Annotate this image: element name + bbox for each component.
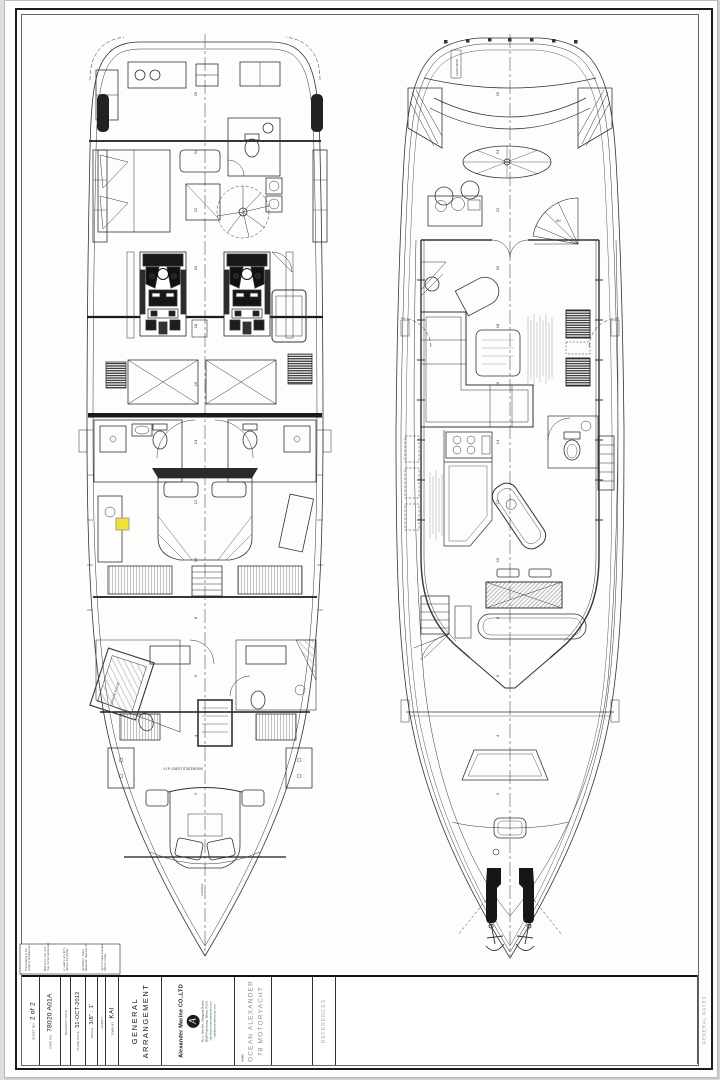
svg-text:property of Alexander: property of Alexander (28, 945, 31, 971)
master-wardrobe-starboard (238, 566, 302, 594)
engine-room (93, 150, 327, 404)
model-name-line2: 78 MOTORYACHT (256, 986, 266, 1056)
svg-text:18: 18 (495, 323, 500, 328)
main-deck-stations: 26 24 22 20 18 16 14 12 10 8 6 4 2 (495, 91, 500, 795)
svg-text:Alexander reserves the: Alexander reserves the (85, 943, 88, 971)
svg-text:16: 16 (193, 381, 198, 386)
guest-berth-port (150, 646, 190, 664)
verify-label: VERIFY (100, 1016, 104, 1028)
verify-cell: VERIFY (98, 977, 106, 1065)
chain-locker-label: LOCKER (200, 883, 204, 896)
property-disclaimer: This drawing is the property of Alexande… (20, 942, 120, 974)
svg-text:6: 6 (495, 674, 500, 677)
main-deck-plan: DN TEAK DECK (396, 34, 624, 958)
company-name: Alexander Marine CO.,LTD (179, 984, 185, 1058)
galley-island (488, 479, 550, 553)
svg-text:12: 12 (495, 499, 500, 504)
drawing-title-line1: GENERAL (129, 998, 140, 1044)
svg-text:14: 14 (193, 439, 198, 444)
master-headboard (152, 468, 258, 478)
starboard-engine (224, 252, 270, 336)
title-block: SHEET NO2 of 2 DWG NO78020 A01A REQUEST … (22, 975, 698, 1065)
company-logo: A (187, 1015, 200, 1028)
port-pump-unit (106, 362, 126, 388)
svg-text:20: 20 (495, 265, 500, 270)
dwg-no-label: DWG NO (48, 1035, 52, 1049)
companionway-stairs (192, 566, 222, 596)
helm-seat (455, 272, 503, 316)
starboard-stern-locker (311, 94, 323, 132)
general-notes-band: GENERAL NOTES (697, 975, 710, 1064)
specification-notes (528, 314, 552, 386)
salon-settee (421, 312, 533, 427)
general-notes-label: GENERAL NOTES (702, 995, 707, 1044)
drawing-title-cell: GENERAL ARRANGEMENT (119, 977, 162, 1065)
vip-nightstand-port (146, 790, 168, 806)
issue-date-value: 31-OCT-2012 (75, 991, 81, 1028)
washer (266, 178, 282, 194)
galley (405, 430, 550, 553)
request-date-cell: REQUEST DATE (61, 977, 71, 1065)
svg-text:22: 22 (495, 207, 500, 212)
vip-nightstand-starboard (242, 790, 264, 806)
svg-text:14: 14 (495, 439, 500, 444)
highlighted-fixture (116, 518, 129, 530)
svg-text:24: 24 (193, 149, 198, 154)
drawn-by-value: KAI (109, 1007, 116, 1018)
crew-quarters (96, 62, 323, 238)
model-name-cell: NAME OCEAN ALEXANDER 78 MOTORYACHT (235, 977, 272, 1065)
svg-text:8: 8 (193, 616, 198, 619)
svg-text:16: 16 (495, 381, 500, 386)
spiral-staircase (217, 186, 269, 238)
galley-notes (430, 470, 442, 540)
salon-sink (425, 277, 439, 291)
sheet-no-cell: SHEET NO2 of 2 (26, 977, 40, 1065)
crew-mess-table (180, 150, 220, 172)
svg-text:may not be reproduced: may not be reproduced (47, 942, 50, 971)
salon (421, 262, 614, 490)
dwg-no-value: 78020 A01A (47, 993, 54, 1031)
dn-label: DN (556, 219, 561, 223)
drawn-by-label: DWN BY (110, 1022, 114, 1035)
crew-head (228, 118, 280, 176)
svg-text:2: 2 (495, 792, 500, 795)
dryer (266, 196, 282, 212)
svg-text:10: 10 (193, 557, 198, 562)
svg-text:6: 6 (193, 674, 198, 677)
drawn-by-cell: DWN BYKAI (106, 977, 119, 1065)
vip-stateroom: V.I.P. GUEST STATEROOM LOCKER (108, 714, 312, 896)
scale-cell: SCALE3/8" : 1' (86, 977, 98, 1065)
equipment-rack (566, 358, 590, 386)
empty-cell (272, 977, 313, 1065)
dwg-no-cell: DWG NO78020 A01A (40, 977, 61, 1065)
scale-label: SCALE (90, 1028, 94, 1039)
model-name-line1: OCEAN ALEXANDER (246, 980, 256, 1062)
issue-date-cell: ISSUE DATE31-OCT-2012 (71, 977, 86, 1065)
references-label: REFERENCES (321, 999, 327, 1043)
svg-text:without notice.: without notice. (104, 953, 107, 971)
foredeck-sunpad (462, 750, 548, 780)
lower-deck-plan: GRANITE FLOOR V.I.P. GUEST STATEROOM (79, 34, 331, 956)
washer-dryer-stack (198, 700, 232, 746)
day-head (548, 416, 598, 468)
svg-text:8: 8 (495, 616, 500, 619)
scale-value: 3/8" : 1' (89, 1004, 95, 1025)
drawing-sheet: GRANITE FLOOR V.I.P. GUEST STATEROOM (0, 0, 720, 1080)
svg-text:24: 24 (495, 149, 500, 154)
svg-text:4: 4 (495, 734, 500, 737)
salon-table (476, 330, 520, 376)
lower-deck-stations: 26 24 22 20 18 16 14 12 10 8 6 4 2 (193, 91, 198, 795)
aft-deck-table (463, 146, 551, 178)
sheet-no-value: 2 of 2 (29, 1002, 36, 1020)
company-cell: Alexander Marine CO.,LTD A No.1, Jietu R… (162, 977, 235, 1065)
svg-text:26: 26 (193, 91, 198, 96)
issue-date-label: ISSUE DATE (76, 1031, 80, 1051)
master-chaise (279, 494, 314, 552)
references-area (336, 977, 698, 1065)
svg-text:12: 12 (193, 499, 198, 504)
svg-text:TEAK DECK: TEAK DECK (455, 59, 459, 76)
teak-deck-label: TEAK DECK (451, 50, 461, 78)
drawing-title-line2: ARRANGEMENT (140, 984, 151, 1059)
port-anchor-chute (486, 868, 501, 923)
svg-text:20: 20 (193, 265, 198, 270)
model-name-label: NAME (240, 1054, 244, 1062)
sheet-no-label: SHEET NO (31, 1023, 35, 1040)
vip-stateroom-label: V.I.P. GUEST STATEROOM (163, 767, 203, 771)
general-arrangement-drawing: GRANITE FLOOR V.I.P. GUEST STATEROOM (0, 0, 720, 975)
svg-text:without the written: without the written (66, 948, 69, 971)
port-stern-locker (97, 94, 109, 132)
crew-sink (263, 123, 273, 133)
starboard-anchor-chute (519, 868, 534, 923)
svg-text:18: 18 (193, 323, 198, 328)
dinette (414, 569, 586, 660)
svg-text:22: 22 (193, 207, 198, 212)
svg-text:2: 2 (193, 792, 198, 795)
request-date-label: REQUEST DATE (64, 1010, 68, 1035)
company-email: mail@oceanalexander.com (213, 1004, 217, 1038)
master-wardrobe-port (108, 566, 172, 594)
port-engine (140, 252, 186, 336)
equipment-rack (566, 310, 590, 338)
svg-text:10: 10 (495, 557, 500, 562)
starboard-pump-unit (288, 354, 312, 384)
guest-berth-starboard (246, 646, 286, 664)
references-cell: REFERENCES (313, 977, 336, 1065)
svg-text:26: 26 (495, 91, 500, 96)
